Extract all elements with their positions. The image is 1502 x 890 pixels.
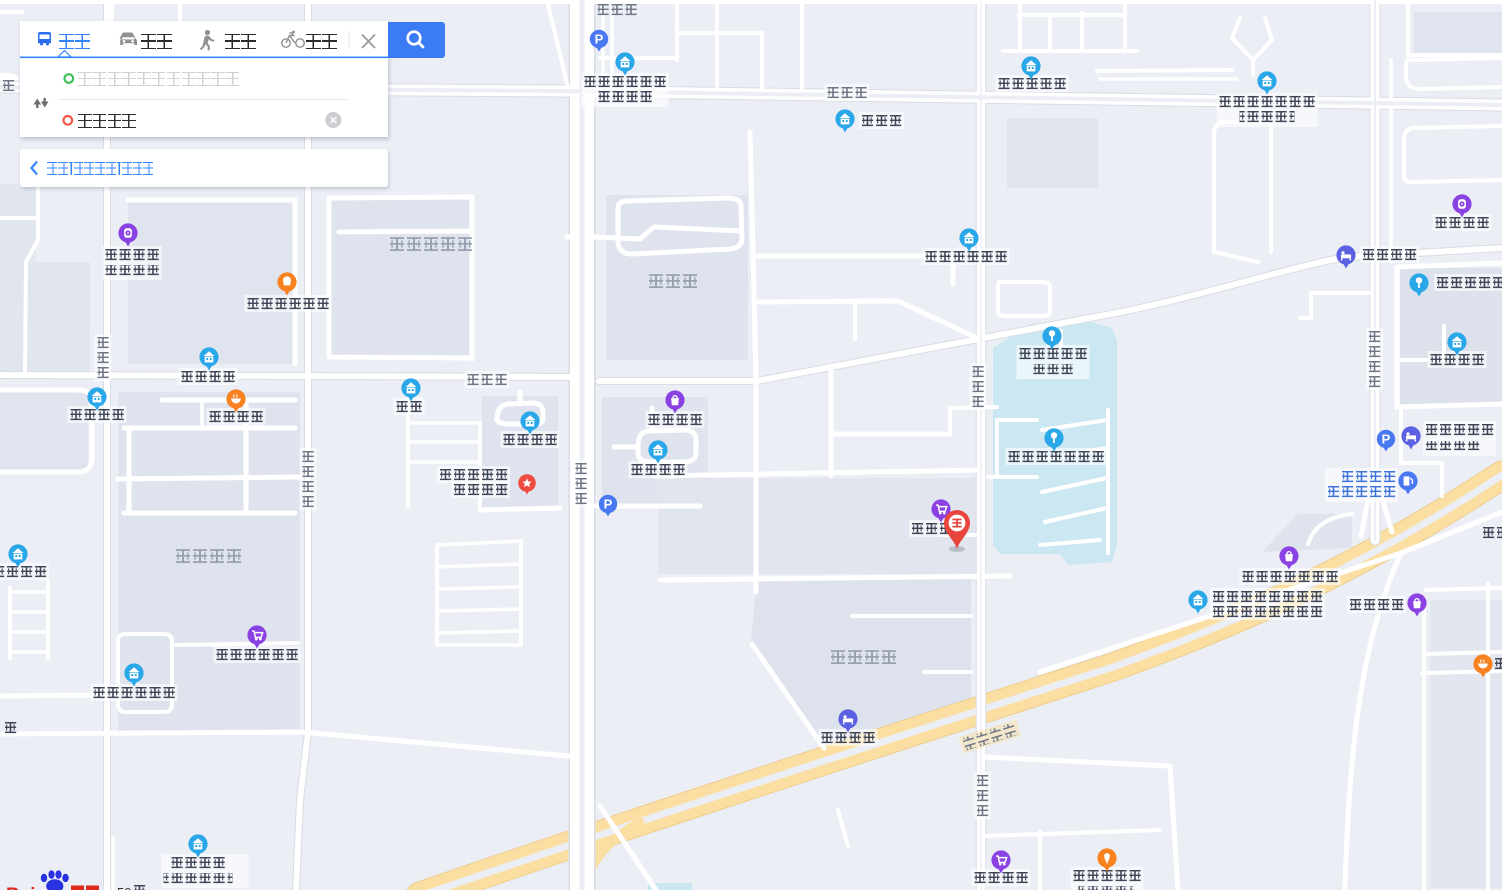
- svg-text:Bai: Bai: [6, 885, 36, 890]
- svg-text:50: 50: [117, 885, 131, 890]
